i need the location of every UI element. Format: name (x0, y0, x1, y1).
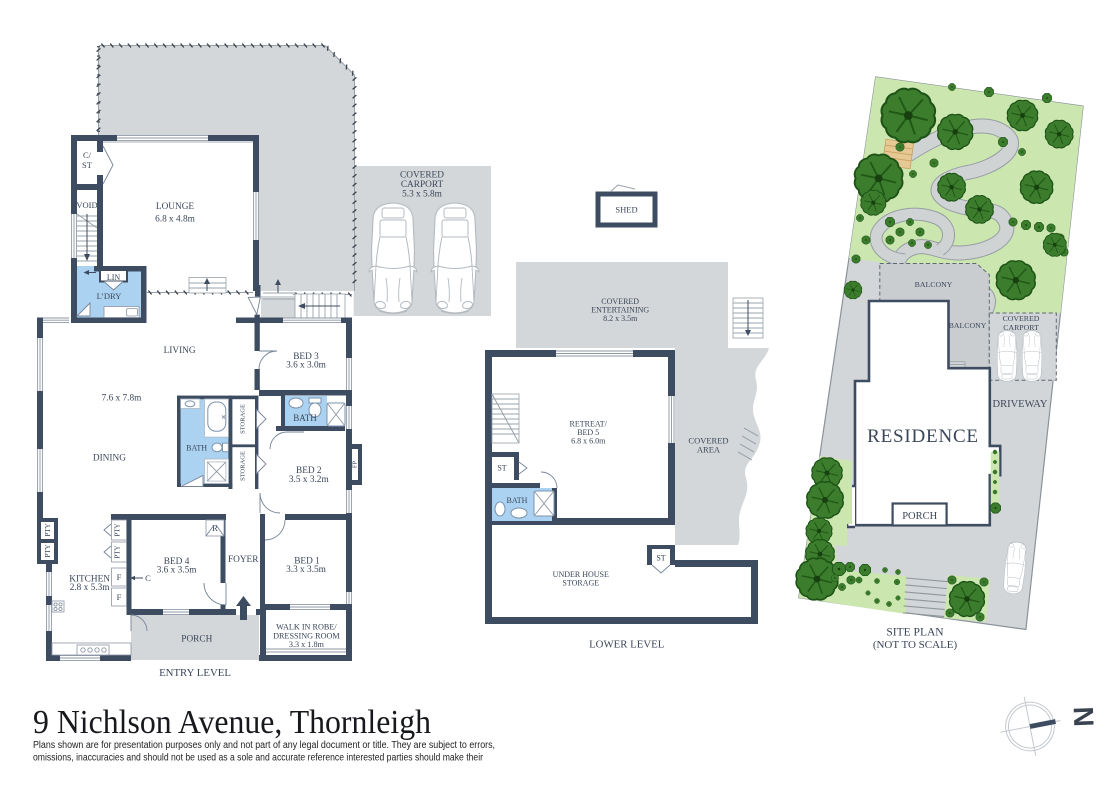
svg-text:DINING: DINING (93, 453, 126, 463)
svg-text:PORCH: PORCH (181, 635, 212, 645)
svg-text:7.6 x 7.8m: 7.6 x 7.8m (102, 393, 143, 403)
svg-text:COVERED: COVERED (400, 171, 444, 181)
svg-text:3.5 x 3.2m: 3.5 x 3.2m (289, 475, 330, 485)
svg-text:3.3 x 3.5m: 3.3 x 3.5m (286, 565, 327, 575)
svg-text:5.3 x 5.8m: 5.3 x 5.8m (402, 189, 443, 199)
svg-text:ENTRY LEVEL: ENTRY LEVEL (159, 667, 231, 679)
svg-text:COVERED: COVERED (1003, 314, 1040, 323)
svg-text:PTY: PTY (44, 544, 52, 557)
svg-text:3.6 x 3.5m: 3.6 x 3.5m (157, 566, 198, 576)
svg-text:SHED: SHED (615, 205, 637, 215)
svg-text:BATH: BATH (507, 496, 528, 505)
svg-text:LIN: LIN (107, 273, 121, 282)
svg-text:SITE PLAN: SITE PLAN (886, 627, 944, 639)
svg-text:C: C (145, 573, 151, 583)
svg-text:PORCH: PORCH (902, 511, 937, 522)
svg-text:N: N (1068, 706, 1100, 727)
svg-text:8.2 x 3.5m: 8.2 x 3.5m (603, 314, 638, 323)
svg-text:WALK IN ROBE/: WALK IN ROBE/ (276, 623, 337, 632)
svg-text:PTY: PTY (114, 523, 122, 536)
svg-text:LIVING: LIVING (164, 346, 196, 356)
svg-text:omissions, inaccuracies and sh: omissions, inaccuracies and should not b… (33, 753, 484, 764)
svg-text:VOID: VOID (76, 200, 97, 210)
svg-text:3.3 x 1.8m: 3.3 x 1.8m (289, 640, 325, 649)
svg-text:PTY: PTY (114, 545, 122, 558)
svg-text:6.8 x 4.8m: 6.8 x 4.8m (155, 215, 196, 225)
svg-text:ST: ST (656, 554, 665, 563)
svg-text:FOYER: FOYER (228, 555, 259, 565)
svg-text:LOWER LEVEL: LOWER LEVEL (589, 639, 664, 651)
svg-text:L’DRY: L’DRY (97, 291, 122, 301)
svg-text:STORAGE: STORAGE (240, 404, 247, 434)
svg-text:3.6 x 3.0m: 3.6 x 3.0m (286, 360, 327, 370)
svg-text:ST: ST (82, 160, 93, 170)
svg-text:F: F (117, 572, 122, 582)
svg-text:BATH: BATH (186, 444, 207, 453)
svg-text:STORAGE: STORAGE (240, 451, 247, 481)
svg-text:FP: FP (352, 461, 359, 469)
svg-text:DRIVEWAY: DRIVEWAY (992, 399, 1047, 410)
svg-text:F: F (117, 592, 122, 602)
svg-text:6.8 x 6.0m: 6.8 x 6.0m (571, 437, 606, 446)
svg-text:(NOT TO SCALE): (NOT TO SCALE) (873, 639, 958, 651)
svg-text:BALCONY: BALCONY (915, 280, 953, 289)
svg-text:2.8 x 5.3m: 2.8 x 5.3m (70, 583, 111, 593)
svg-text:BALCONY: BALCONY (949, 321, 987, 330)
svg-text:9 Nichlson Avenue, Thornleigh: 9 Nichlson Avenue, Thornleigh (33, 704, 431, 741)
svg-text:Plans shown are for presentati: Plans shown are for presentation purpose… (33, 740, 495, 751)
svg-text:C/: C/ (83, 150, 92, 160)
svg-text:RESIDENCE: RESIDENCE (867, 426, 979, 447)
svg-text:BATH: BATH (293, 413, 317, 423)
svg-text:R: R (212, 523, 218, 533)
svg-text:AREA: AREA (697, 445, 721, 455)
svg-text:STORAGE: STORAGE (562, 579, 599, 588)
svg-text:PTY: PTY (44, 523, 52, 536)
svg-text:LOUNGE: LOUNGE (156, 202, 195, 212)
svg-text:ST: ST (497, 464, 506, 473)
